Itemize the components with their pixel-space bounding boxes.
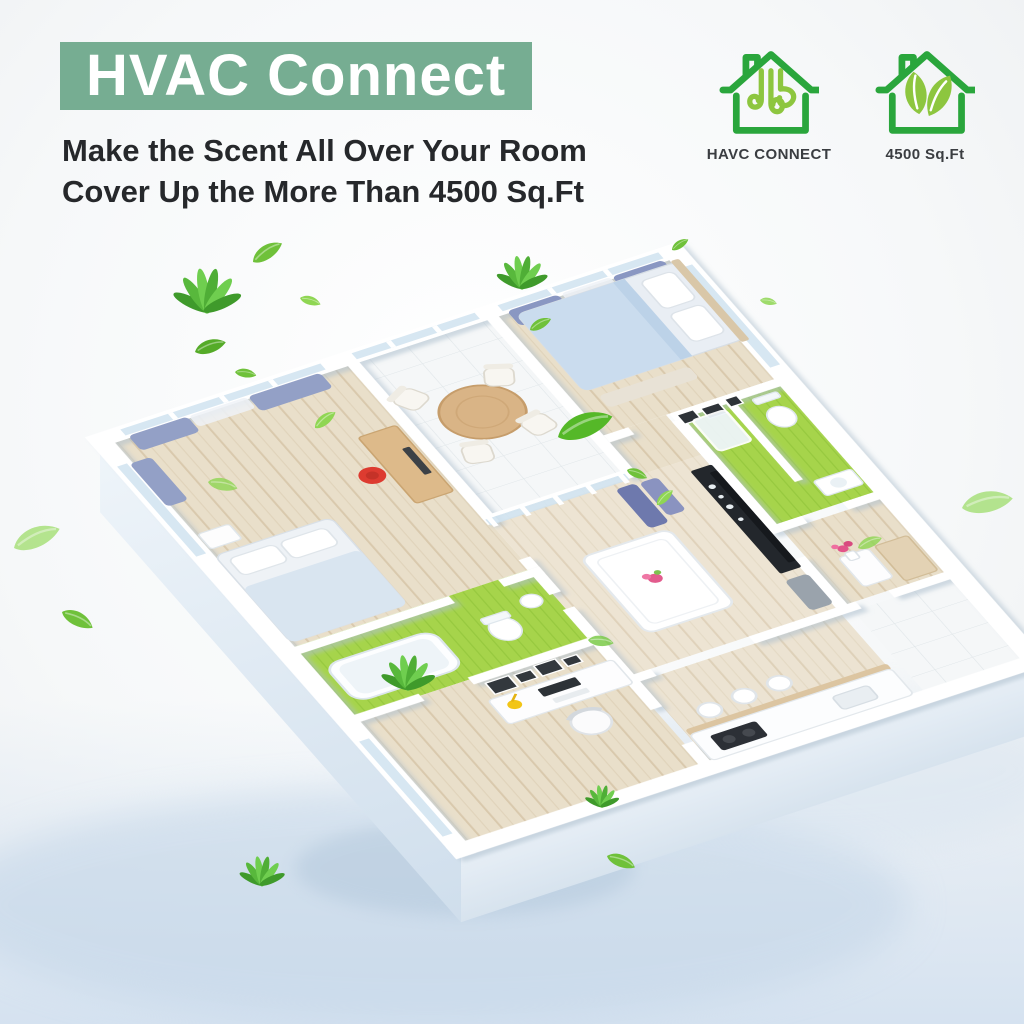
subtitle-line-1: Make the Scent All Over Your Room: [62, 130, 587, 171]
title-banner: HVAC Connect: [60, 42, 532, 110]
hvac-connect-house-icon: [719, 44, 819, 138]
badge-hvac-connect: HAVC CONNECT: [704, 44, 834, 163]
leaf-house-icon: [875, 44, 975, 138]
subtitle: Make the Scent All Over Your Room Cover …: [62, 130, 587, 212]
page-title: HVAC Connect: [86, 43, 506, 108]
badge-label-coverage: 4500 Sq.Ft: [885, 146, 964, 163]
badge-coverage: 4500 Sq.Ft: [860, 44, 990, 163]
badges: HAVC CONNECT 4500 Sq.Ft: [704, 44, 990, 163]
badge-label-hvac-connect: HAVC CONNECT: [707, 146, 832, 163]
subtitle-line-2: Cover Up the More Than 4500 Sq.Ft: [62, 171, 587, 212]
